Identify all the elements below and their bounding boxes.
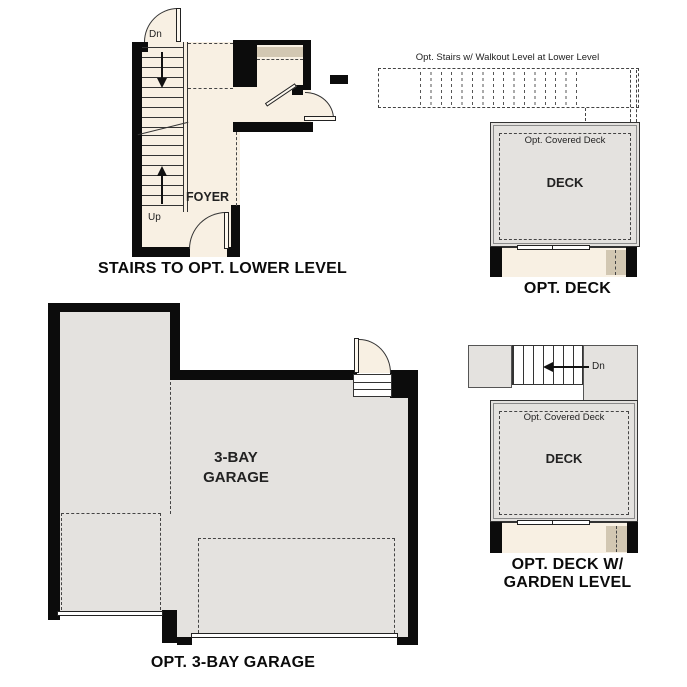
door-swing-arc — [305, 92, 334, 119]
chase-dashed-line — [615, 250, 616, 275]
plan-caption-line2: GARDEN LEVEL — [480, 574, 655, 592]
bay-dashed-outline — [61, 513, 161, 610]
garage-door — [191, 633, 398, 638]
wall — [231, 205, 240, 249]
window — [517, 245, 590, 250]
stair-landing — [468, 345, 512, 388]
wall — [408, 370, 418, 645]
plan-caption-line1: OPT. DECK W/ — [480, 556, 655, 574]
wall — [48, 303, 60, 620]
window-divider — [552, 520, 553, 525]
garage-door — [57, 611, 163, 616]
wall — [170, 303, 180, 373]
door-swing-arc — [359, 339, 391, 373]
room-label-garage: GARAGE — [186, 469, 286, 486]
closet-shelf — [257, 47, 303, 57]
stair-direction-label: Dn — [592, 361, 605, 372]
plan-caption: OPT. DECK — [480, 280, 655, 298]
wall — [170, 370, 357, 380]
stair-direction-label: Up — [148, 212, 161, 223]
room-label-garage: 3-BAY — [186, 449, 286, 466]
closet-shelf-dashed-line — [257, 59, 303, 60]
wall — [132, 42, 142, 257]
covered-deck-label: Opt. Covered Deck — [491, 135, 639, 146]
plan-caption: OPT. 3-BAY GARAGE — [113, 654, 353, 672]
stair-direction-label: Dn — [149, 29, 162, 40]
window-divider — [552, 245, 553, 250]
opening-dashed-line — [188, 43, 233, 44]
stair-landing — [583, 345, 638, 401]
wall — [397, 637, 418, 645]
step-edge — [354, 389, 391, 390]
wall — [233, 40, 257, 87]
plan-caption: STAIRS TO OPT. LOWER LEVEL — [85, 260, 360, 278]
wall — [490, 522, 502, 553]
wall — [303, 40, 311, 90]
wall — [177, 637, 192, 645]
stair-stringer — [183, 42, 188, 212]
wall — [48, 303, 180, 312]
optional-stairs-dashed-line — [630, 70, 631, 122]
wall — [626, 247, 637, 277]
wall — [330, 75, 348, 84]
wall — [162, 610, 177, 643]
opening-dashed-line — [188, 88, 233, 89]
down-arrowhead-icon — [543, 362, 553, 372]
wall — [627, 522, 638, 553]
deck-area: Opt. Covered Deck DECK — [490, 400, 638, 522]
optional-stairs-dashed-line — [585, 108, 586, 121]
bay-dashed-outline — [198, 538, 395, 633]
optional-stairs-note: Opt. Stairs w/ Walkout Level at Lower Le… — [375, 52, 640, 63]
window — [517, 520, 590, 525]
door-leaf — [224, 212, 229, 249]
door-leaf — [304, 116, 336, 121]
up-arrowhead-icon — [157, 166, 167, 176]
chase-dashed-line — [616, 526, 617, 552]
deck-area: Opt. Covered Deck DECK — [490, 122, 640, 247]
wall — [233, 40, 311, 45]
optional-stairs-treads — [420, 69, 586, 107]
door-leaf — [176, 8, 181, 42]
down-arrowhead-icon — [157, 78, 167, 88]
down-arrow-icon — [551, 366, 589, 368]
fireplace-chase — [606, 250, 626, 275]
opening-dashed-line — [236, 132, 237, 206]
wall — [490, 247, 502, 277]
wall — [132, 247, 190, 257]
wall — [233, 122, 313, 132]
room-label-deck: DECK — [491, 451, 637, 466]
down-arrow-icon — [161, 52, 163, 79]
step-edge — [354, 382, 391, 383]
up-arrow-icon — [161, 175, 163, 204]
door-leaf — [354, 338, 359, 373]
bay-divider-dashed-line — [170, 382, 171, 514]
floorplan-sheet: Dn Up FOYER STAIRS TO OPT. LOWER LEVEL O… — [0, 0, 687, 687]
covered-deck-label: Opt. Covered Deck — [491, 412, 637, 423]
optional-stairs-dashed-line — [636, 70, 637, 122]
entry-steps — [353, 374, 392, 397]
room-label-foyer: FOYER — [186, 190, 229, 204]
room-label-deck: DECK — [491, 175, 639, 190]
